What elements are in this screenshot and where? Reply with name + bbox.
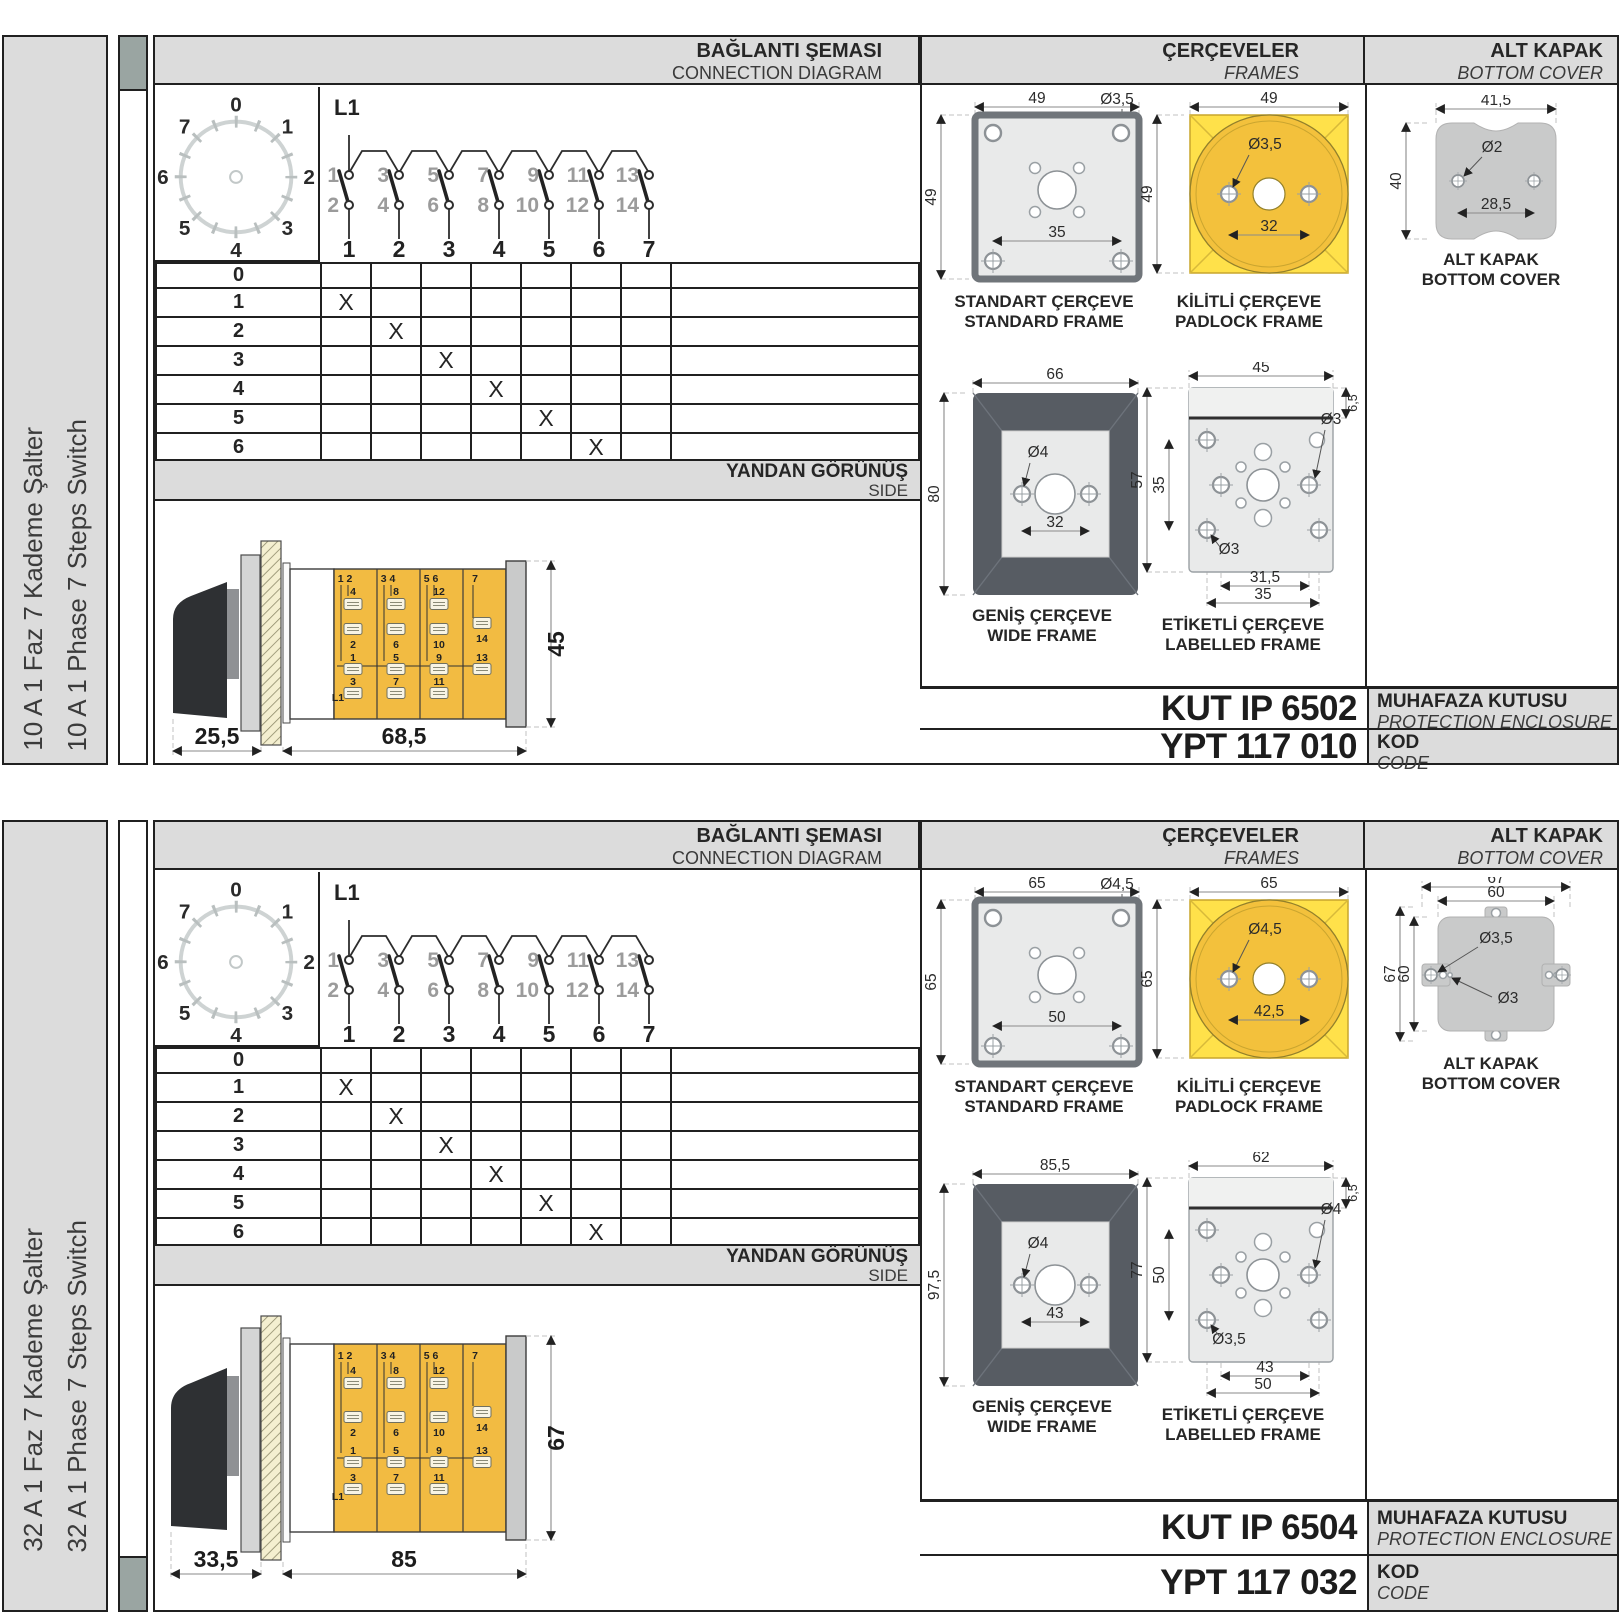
dimension-front: 25,5 — [195, 723, 240, 749]
dimension-width: 45 — [1252, 362, 1269, 376]
dimension-width: 49 — [1028, 91, 1045, 107]
frame-caption-turkish: GENİŞ ÇERÇEVE — [927, 606, 1157, 626]
contact-state-cell — [521, 263, 571, 288]
switch-pole: 9 10 5 — [516, 164, 556, 262]
page-index-strip — [118, 820, 148, 1612]
connection-diagram-header: BAĞLANTI ŞEMASI CONNECTION DIAGRAM — [155, 822, 920, 870]
table-tail-cell — [671, 404, 919, 433]
product-section-10a: 10 A 1 Faz 7 Kademe Şalter 10 A 1 Phase … — [0, 35, 1623, 765]
header-turkish: ALT KAPAK — [1365, 825, 1603, 848]
dimension-width: 85,5 — [1040, 1158, 1070, 1174]
dimension-hole: Ø3,5 — [1100, 91, 1134, 108]
switch-table-row: 1X — [156, 1073, 919, 1102]
rotary-dial-box: 0 1 2 3 4 5 6 7 — [155, 872, 320, 1047]
dimension-width: 66 — [1046, 367, 1063, 383]
contact-state-cell: X — [571, 433, 621, 462]
dimension-width: 65 — [1260, 876, 1277, 892]
contact-state-cell — [521, 346, 571, 375]
wide-frame-cell: 85,5 97,5 Ø4 43 GENİŞ ÇERÇEVE WIDE FRAME — [927, 1158, 1157, 1437]
dial-position: 1 — [282, 900, 294, 923]
contact-state-cell — [571, 1073, 621, 1102]
switch-table-row: 4X — [156, 1160, 919, 1189]
switch-table-row: 2X — [156, 317, 919, 346]
header-english: BOTTOM COVER — [1365, 848, 1603, 869]
terminal-label: 6 — [393, 639, 399, 651]
dimension-height: 97,5 — [928, 1270, 943, 1300]
contact-state-cell — [471, 1189, 521, 1218]
contact-state-cell — [421, 1073, 471, 1102]
label-english: CODE — [1377, 1583, 1617, 1603]
contact-number: 14 — [616, 194, 640, 217]
contact-state-cell — [571, 1189, 621, 1218]
dial-position: 3 — [282, 217, 294, 240]
dimension-height: 57 — [1129, 471, 1146, 488]
product-title-english: 10 A 1 Phase 7 Steps Switch — [62, 419, 93, 751]
dial-position: 4 — [230, 1024, 242, 1045]
contact-state-cell — [421, 1218, 471, 1247]
terminal-label: 14 — [476, 1422, 488, 1434]
terminal-label: 1 — [350, 652, 356, 664]
product-title-english: 32 A 1 Phase 7 Steps Switch — [62, 1220, 93, 1552]
contact-state-cell — [421, 1189, 471, 1218]
table-tail-cell — [671, 288, 919, 317]
cover-caption-english: BOTTOM COVER — [1371, 270, 1611, 290]
terminal-label: 1 2 — [338, 573, 353, 585]
dimension-pitch: 35 — [1048, 224, 1065, 241]
contact-state-cell — [421, 288, 471, 317]
dimension-pitch: 50 — [1048, 1009, 1066, 1026]
contact-state-cell — [321, 1160, 371, 1189]
product-code-row: YPT 117 032 KOD CODE — [920, 1554, 1617, 1610]
side-view-drawing: 1 2 4 2 1 3 L1 3 4 8 6 5 — [157, 1288, 587, 1590]
dimension-height: 65 — [925, 973, 940, 990]
contact-state-cell — [371, 288, 421, 317]
contact-state-cell — [621, 1131, 671, 1160]
contact-state-cell — [421, 317, 471, 346]
contact-state-cell — [371, 433, 421, 462]
dial-position: 6 — [157, 951, 169, 974]
contact-number: 6 — [427, 194, 439, 217]
panel-divider — [1365, 85, 1367, 686]
padlock-frame-drawing: 49 49 Ø3,5 32 — [1135, 91, 1363, 287]
step-position-label: 4 — [156, 375, 321, 404]
contact-number: 10 — [516, 979, 539, 1002]
terminal-label: 2 — [350, 1427, 356, 1439]
contact-state-cell — [621, 404, 671, 433]
header-english: FRAMES — [920, 848, 1299, 869]
dial-position: 3 — [282, 1002, 294, 1025]
contact-state-cell: X — [521, 404, 571, 433]
rotary-dial-box: 0 1 2 3 4 5 6 7 — [155, 87, 320, 262]
dimension-pitch: 42,5 — [1254, 1003, 1284, 1020]
contact-state-cell — [421, 1160, 471, 1189]
contact-state-cell: X — [371, 317, 421, 346]
header-turkish: ÇERÇEVELER — [920, 825, 1299, 848]
output-number: 5 — [543, 236, 556, 262]
contact-number: 3 — [377, 164, 389, 187]
standard-frame-cell: 65 Ø4,5 65 50 STANDART ÇERÇEVE STANDARD … — [925, 876, 1163, 1117]
output-number: 5 — [543, 1021, 556, 1047]
dimension-hole-right: Ø3 — [1321, 411, 1342, 428]
bottom-cover-cell: 41,5 40 Ø2 28,5 ALT KAPAK BOTTOM COVER — [1371, 95, 1611, 290]
table-tail-cell — [671, 1102, 919, 1131]
step-position-label: 3 — [156, 1131, 321, 1160]
output-number: 1 — [343, 236, 356, 262]
contact-state-cell — [621, 375, 671, 404]
contact-state-cell: X — [321, 288, 371, 317]
labelled-frame-cell: 45 57 35 6,5 Ø3 — [1127, 362, 1359, 655]
connection-diagram-header: BAĞLANTI ŞEMASI CONNECTION DIAGRAM — [155, 37, 920, 85]
labelled-frame-cell: 62 77 50 6,5 Ø4 — [1127, 1152, 1359, 1445]
terminal-label: 14 — [476, 633, 488, 645]
connection-circuit-diagram: L1 1 2 1 3 4 2 — [320, 87, 920, 262]
dial-position: 6 — [157, 166, 169, 189]
contact-number: 7 — [477, 949, 489, 972]
contact-state-cell — [521, 1048, 571, 1073]
terminal-label: 11 — [433, 676, 444, 688]
terminal-label: 4 — [350, 586, 356, 598]
contact-state-cell — [321, 375, 371, 404]
contact-state-cell — [371, 1160, 421, 1189]
contact-state-cell: X — [571, 1218, 621, 1247]
output-number: 7 — [643, 236, 656, 262]
dimension-body: 85 — [391, 1546, 417, 1572]
enclosure-code-row: KUT IP 6502 MUHAFAZA KUTUSU PROTECTION E… — [920, 686, 1617, 728]
table-tail-cell — [671, 1218, 919, 1247]
terminal-label: 4 — [350, 1365, 356, 1377]
contact-state-cell — [521, 433, 571, 462]
label-turkish: MUHAFAZA KUTUSU — [1377, 1508, 1617, 1529]
contact-number: 1 — [327, 164, 339, 187]
step-position-label: 4 — [156, 1160, 321, 1189]
contact-state-cell — [471, 1048, 521, 1073]
contact-state-cell — [571, 1048, 621, 1073]
frame-caption-turkish: GENİŞ ÇERÇEVE — [927, 1397, 1157, 1417]
contact-state-cell — [521, 1218, 571, 1247]
switch-table-row: 5X — [156, 404, 919, 433]
step-position-label: 5 — [156, 1189, 321, 1218]
contact-state-cell — [471, 1218, 521, 1247]
contact-state-cell — [471, 433, 521, 462]
dimension-height: 77 — [1129, 1261, 1146, 1278]
contact-state-cell — [521, 1131, 571, 1160]
step-position-label: 3 — [156, 346, 321, 375]
output-number: 4 — [493, 1021, 506, 1047]
output-number: 4 — [493, 236, 506, 262]
contact-state-cell: X — [421, 1131, 471, 1160]
terminal-label: 11 — [433, 1472, 444, 1484]
frame-caption-english: LABELLED FRAME — [1127, 635, 1359, 655]
frame-caption-turkish: KİLİTLİ ÇERÇEVE — [1135, 1077, 1363, 1097]
step-position-label: 0 — [156, 263, 321, 288]
padlock-frame-cell: 49 49 Ø3,5 32 KİLİTLİ ÇERÇEVE PADLOCK FR… — [1135, 91, 1363, 332]
contact-state-cell — [471, 317, 521, 346]
contact-state-cell: X — [421, 346, 471, 375]
switch-pole: 11 12 6 — [566, 164, 606, 262]
frame-caption-turkish: STANDART ÇERÇEVE — [925, 1077, 1163, 1097]
dimension-strip: 6,5 — [1346, 1184, 1359, 1201]
contact-state-cell: X — [371, 1102, 421, 1131]
switch-pole: 5 6 3 — [427, 949, 455, 1047]
dimension-width: 49 — [1260, 91, 1277, 107]
table-tail-cell — [671, 346, 919, 375]
switch-pole: 13 14 7 — [616, 949, 656, 1047]
dimension-pitch2: 50 — [1254, 1376, 1272, 1393]
dimension-hole: Ø4,5 — [1100, 876, 1134, 893]
contact-number: 8 — [477, 194, 489, 217]
contact-number: 7 — [477, 164, 489, 187]
contact-state-cell — [521, 375, 571, 404]
switch-table-row: 6X — [156, 1218, 919, 1247]
mounting-plate — [261, 1316, 281, 1560]
table-tail-cell — [671, 1073, 919, 1102]
contact-state-cell — [571, 1131, 621, 1160]
contact-state-cell — [621, 1073, 671, 1102]
phase-label: L1 — [334, 880, 360, 905]
dimension-pitch: 32 — [1046, 514, 1063, 531]
dimension-height: 49 — [925, 188, 940, 205]
enclosure-label: MUHAFAZA KUTUSU PROTECTION ENCLOSURE — [1367, 1502, 1617, 1554]
dimension-hole: Ø3,5 — [1248, 136, 1282, 153]
datasheet-panel: BAĞLANTI ŞEMASI CONNECTION DIAGRAM ÇERÇE… — [153, 820, 1619, 1612]
switch-handle — [173, 582, 227, 718]
table-tail-cell — [671, 1160, 919, 1189]
terminal-label: 12 — [433, 586, 445, 598]
contact-number: 11 — [567, 949, 590, 972]
contact-number: 6 — [427, 979, 439, 1002]
dial-position: 5 — [179, 217, 191, 240]
contact-state-cell — [621, 433, 671, 462]
header-english: CONNECTION DIAGRAM — [155, 848, 882, 869]
contact-number: 3 — [377, 949, 389, 972]
contact-state-cell — [471, 404, 521, 433]
terminal-label: 2 — [350, 639, 356, 651]
header-turkish: ALT KAPAK — [1365, 40, 1603, 63]
contact-number: 12 — [566, 194, 589, 217]
circuit-box: L1 1 2 1 3 4 2 — [320, 872, 920, 1047]
dimension-pitch2: 35 — [1254, 586, 1271, 603]
contact-number: 12 — [566, 979, 589, 1002]
page-index-marker — [120, 1556, 146, 1610]
output-number: 1 — [343, 1021, 356, 1047]
contact-state-cell — [421, 433, 471, 462]
terminal-label: 7 — [472, 573, 478, 585]
contact-state-cell — [421, 1102, 471, 1131]
switch-pole: 5 6 3 — [427, 164, 455, 262]
dial-position: 0 — [230, 879, 242, 902]
contact-state-cell — [571, 404, 621, 433]
bottom-cover-cell: 67 60 67 60 Ø3,5 Ø3 A — [1371, 877, 1611, 1094]
contact-state-cell — [321, 317, 371, 346]
dimension-body: 68,5 — [382, 723, 427, 749]
dial-position: 2 — [303, 166, 315, 189]
switch-table-row: 6X — [156, 433, 919, 462]
switch-pole: 9 10 5 — [516, 949, 556, 1047]
contact-state-cell — [521, 1073, 571, 1102]
header-turkish: BAĞLANTI ŞEMASI — [155, 825, 882, 848]
dimension-hole-right: Ø4 — [1321, 1201, 1342, 1218]
contact-state-cell: X — [521, 1189, 571, 1218]
output-number: 2 — [393, 1021, 406, 1047]
labelled-frame-drawing: 45 57 35 6,5 Ø3 — [1127, 362, 1359, 610]
contact-state-cell — [571, 1160, 621, 1189]
terminal-label: 12 — [433, 1365, 445, 1377]
contact-number: 9 — [527, 164, 539, 187]
contact-state-cell — [621, 1048, 671, 1073]
product-sidebar: 10 A 1 Faz 7 Kademe Şalter 10 A 1 Phase … — [2, 35, 108, 765]
end-plate — [506, 561, 526, 727]
contact-state-cell — [321, 1131, 371, 1160]
table-tail-cell — [671, 317, 919, 346]
contact-number: 5 — [427, 949, 439, 972]
contact-state-cell — [371, 1218, 421, 1247]
contact-state-cell — [621, 1160, 671, 1189]
frame-caption-english: LABELLED FRAME — [1127, 1425, 1359, 1445]
step-position-label: 0 — [156, 1048, 321, 1073]
enclosure-code: KUT IP 6504 — [920, 1502, 1367, 1554]
contact-state-cell — [621, 288, 671, 317]
contact-state-cell — [321, 1048, 371, 1073]
dimension-height: 80 — [928, 485, 943, 503]
cover-caption-english: BOTTOM COVER — [1371, 1074, 1611, 1094]
contact-number: 13 — [616, 164, 639, 187]
panel-divider — [920, 822, 922, 1610]
table-tail-cell — [671, 1189, 919, 1218]
product-title-turkish: 32 A 1 Faz 7 Kademe Şalter — [18, 1228, 49, 1552]
contact-number: 1 — [327, 949, 339, 972]
switch-table-row: 0 — [156, 263, 919, 288]
wide-frame-drawing: 85,5 97,5 Ø4 43 — [928, 1158, 1156, 1392]
dial-position: 4 — [230, 239, 242, 260]
dimension-pitch-vertical: 35 — [1151, 476, 1168, 493]
label-english: CODE — [1377, 753, 1617, 773]
frames-header: ÇERÇEVELER FRAMES — [920, 822, 1365, 870]
side-view-drawing: 1 2 4 2 1 3 L1 3 4 8 6 5 — [157, 503, 587, 767]
switch-pole: 3 4 2 — [377, 164, 405, 262]
frame-caption-english: WIDE FRAME — [927, 626, 1157, 646]
contact-number: 11 — [567, 164, 590, 187]
dial-position: 7 — [179, 900, 191, 923]
table-tail-cell — [671, 375, 919, 404]
front-plate — [241, 1328, 260, 1552]
switching-table: 01X2X3X4X5X6X7X — [155, 262, 920, 492]
dimension-hole: Ø4 — [1028, 444, 1049, 461]
padlock-frame-cell: 65 65 Ø4,5 42,5 KİLİTLİ ÇERÇEVE PADLOCK … — [1135, 876, 1363, 1117]
contact-state-cell — [371, 1048, 421, 1073]
dimension-height: 65 — [1139, 970, 1156, 987]
contact-state-cell — [321, 404, 371, 433]
contact-state-cell — [571, 288, 621, 317]
contact-number: 13 — [616, 949, 639, 972]
cover-caption-turkish: ALT KAPAK — [1371, 1054, 1611, 1074]
side-view-bar: YANDAN GÖRÜNÜŞ SIDE — [155, 459, 920, 501]
product-code-row: YPT 117 010 KOD CODE — [920, 728, 1617, 763]
contact-state-cell — [421, 1048, 471, 1073]
output-number: 3 — [443, 1021, 456, 1047]
panel-divider — [920, 37, 922, 763]
product-title-turkish: 10 A 1 Faz 7 Kademe Şalter — [18, 427, 49, 751]
dimension-front: 33,5 — [194, 1546, 239, 1572]
dimension-hole: Ø2 — [1482, 139, 1503, 156]
header-english: CONNECTION DIAGRAM — [155, 63, 882, 84]
dimension-hole1: Ø3,5 — [1479, 930, 1513, 947]
table-tail-cell — [671, 433, 919, 462]
contact-state-cell — [571, 1102, 621, 1131]
dimension-height: 45 — [543, 631, 569, 657]
connection-circuit-diagram: L1 1 2 1 3 4 2 — [320, 872, 920, 1047]
wide-frame-drawing: 66 80 Ø4 32 — [928, 367, 1156, 601]
terminal-label: 3 — [350, 676, 356, 688]
dimension-height: 40 — [1388, 172, 1405, 190]
padlock-frame-drawing: 65 65 Ø4,5 42,5 — [1135, 876, 1363, 1072]
dimension-hole: Ø4 — [1028, 1235, 1049, 1252]
frame-caption-english: STANDARD FRAME — [925, 1097, 1163, 1117]
dimension-strip: 6,5 — [1346, 394, 1359, 411]
contact-state-cell — [321, 1102, 371, 1131]
contact-state-cell — [471, 346, 521, 375]
output-number: 6 — [593, 1021, 606, 1047]
standard-frame-drawing: 49 Ø3,5 49 35 — [925, 91, 1163, 287]
dimension-pitch-vertical: 50 — [1151, 1266, 1168, 1284]
contact-state-cell — [621, 1218, 671, 1247]
phase-label: L1 — [334, 95, 360, 120]
dimension-height: 49 — [1139, 185, 1156, 202]
contact-state-cell — [471, 1073, 521, 1102]
standard-frame-cell: 49 Ø3,5 49 35 STANDART ÇERÇEVE STANDARD … — [925, 91, 1163, 332]
dial-position: 5 — [179, 1002, 191, 1025]
label-turkish: MUHAFAZA KUTUSU — [1377, 691, 1617, 712]
switch-table-row: 3X — [156, 1131, 919, 1160]
datasheet-panel: BAĞLANTI ŞEMASI CONNECTION DIAGRAM ÇERÇE… — [153, 35, 1619, 765]
header-turkish: ÇERÇEVELER — [920, 40, 1299, 63]
bottom-cover-drawing: 41,5 40 Ø2 28,5 — [1372, 95, 1610, 245]
contact-state-cell — [521, 288, 571, 317]
code-label: KOD CODE — [1367, 1556, 1617, 1610]
dimension-pitch: 43 — [1046, 1305, 1063, 1322]
side-view-label-turkish: YANDAN GÖRÜNÜŞ — [155, 461, 908, 482]
front-plate — [241, 555, 260, 731]
enclosure-code-row: KUT IP 6504 MUHAFAZA KUTUSU PROTECTION E… — [920, 1499, 1617, 1554]
contact-state-cell — [371, 1073, 421, 1102]
terminal-label: 13 — [476, 652, 488, 664]
output-number: 3 — [443, 236, 456, 262]
contact-state-cell — [421, 404, 471, 433]
cover-caption-turkish: ALT KAPAK — [1371, 250, 1611, 270]
terminal-label: 8 — [393, 1365, 399, 1377]
dimension-hole2: Ø3 — [1498, 990, 1519, 1007]
switch-pole: 13 14 7 — [616, 164, 656, 262]
rotary-dial-diagram: 0 1 2 3 4 5 6 7 — [155, 872, 318, 1045]
contact-state-cell — [621, 1189, 671, 1218]
terminal-label: 10 — [433, 1427, 445, 1439]
contact-state-cell — [621, 346, 671, 375]
contact-state-cell — [521, 1160, 571, 1189]
mounting-plate — [261, 541, 281, 745]
terminal-label: 7 — [393, 676, 399, 688]
dimension-pitch: 28,5 — [1481, 196, 1511, 213]
output-number: 2 — [393, 236, 406, 262]
frame-caption-turkish: ETİKETLİ ÇERÇEVE — [1127, 1405, 1359, 1425]
enclosure-code: KUT IP 6502 — [920, 689, 1367, 728]
terminal-label: 13 — [476, 1445, 488, 1457]
contact-state-cell — [421, 375, 471, 404]
contact-state-cell — [521, 1102, 571, 1131]
output-number: 6 — [593, 236, 606, 262]
bottom-cover-header: ALT KAPAK BOTTOM COVER — [1365, 37, 1617, 85]
frame-caption-turkish: STANDART ÇERÇEVE — [925, 292, 1163, 312]
contact-state-cell — [621, 1102, 671, 1131]
contact-state-cell — [321, 263, 371, 288]
